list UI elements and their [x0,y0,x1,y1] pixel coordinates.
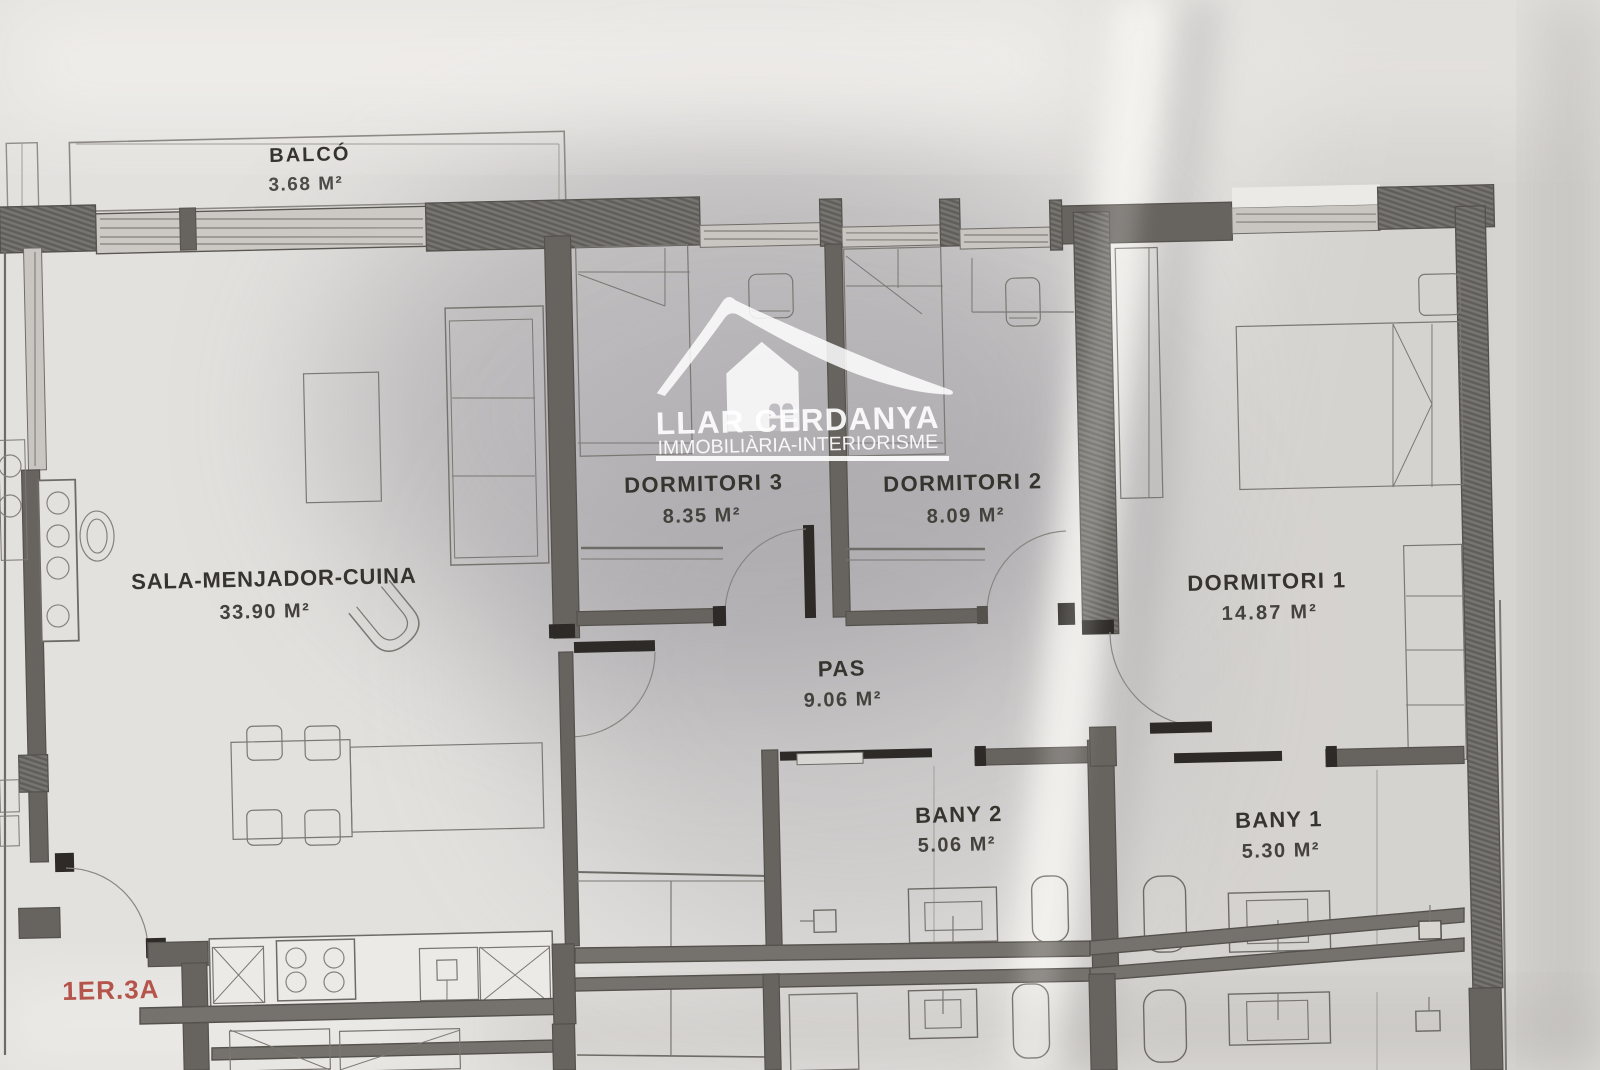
svg-text:8.09 M²: 8.09 M² [927,504,1006,528]
svg-text:DORMITORI 1: DORMITORI 1 [1187,567,1347,596]
svg-text:9.06 M²: 9.06 M² [803,688,882,712]
svg-text:PAS: PAS [818,655,867,681]
svg-text:3.68 M²: 3.68 M² [268,173,343,196]
svg-text:5.06 M²: 5.06 M² [917,833,996,857]
svg-text:DORMITORI 2: DORMITORI 2 [883,468,1043,497]
svg-text:8.35 M²: 8.35 M² [662,504,741,528]
svg-text:14.87 M²: 14.87 M² [1221,601,1318,625]
svg-text:DORMITORI 3: DORMITORI 3 [624,469,784,498]
svg-text:BANY 2: BANY 2 [915,801,1003,828]
svg-text:BANY 1: BANY 1 [1235,806,1323,833]
svg-text:5.30 M²: 5.30 M² [1241,839,1320,863]
svg-text:1ER.3A: 1ER.3A [62,974,160,1006]
svg-text:33.90 M²: 33.90 M² [219,600,310,624]
svg-text:BALCÓ: BALCÓ [269,141,351,167]
